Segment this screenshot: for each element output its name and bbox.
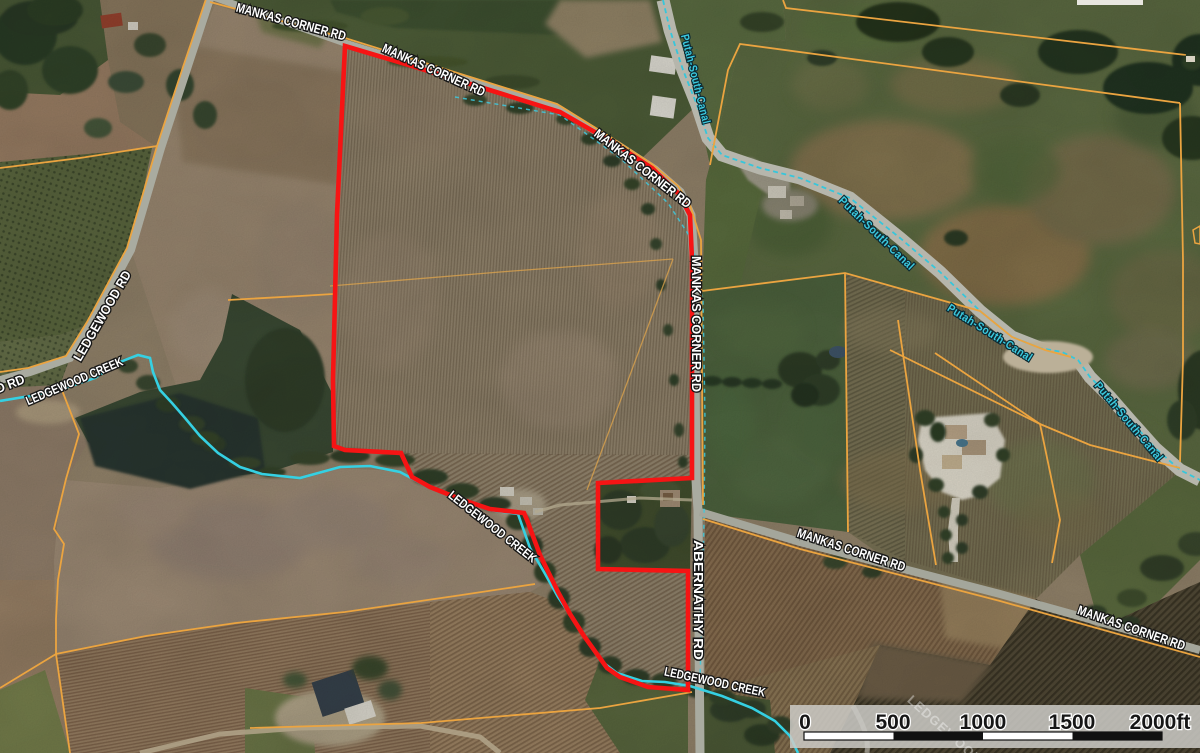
svg-text:MANKAS CORNER RD: MANKAS CORNER RD	[689, 256, 704, 392]
svg-text:500: 500	[875, 711, 910, 734]
svg-text:1000: 1000	[960, 711, 1007, 734]
svg-text:1500: 1500	[1049, 711, 1096, 734]
svg-text:2000ft: 2000ft	[1130, 711, 1191, 734]
svg-text:ABERNATHY RD: ABERNATHY RD	[691, 540, 706, 660]
svg-text:0: 0	[799, 711, 811, 734]
